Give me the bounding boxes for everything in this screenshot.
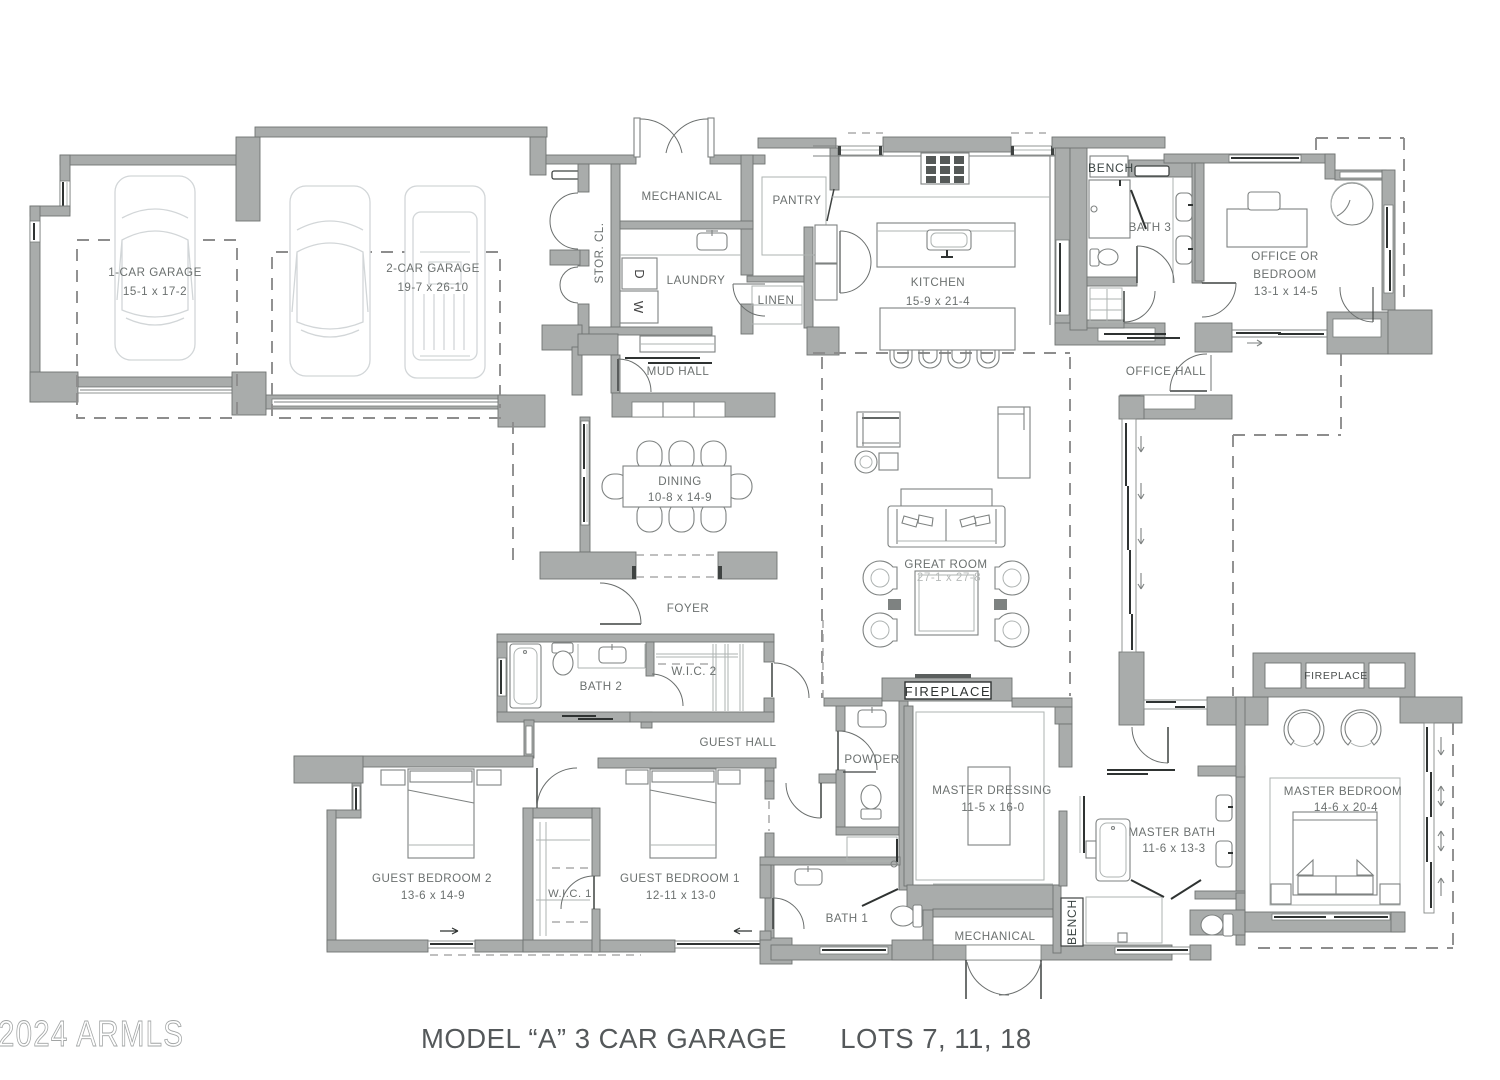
svg-text:2-CAR GARAGE: 2-CAR GARAGE [386, 262, 480, 275]
svg-text:2024 ARMLS: 2024 ARMLS [0, 1013, 184, 1053]
svg-text:DINING: DINING [658, 475, 702, 488]
svg-text:GUEST BEDROOM 2: GUEST BEDROOM 2 [372, 872, 492, 885]
svg-text:BEDROOM: BEDROOM [1253, 268, 1316, 281]
svg-text:BATH 3: BATH 3 [1129, 221, 1172, 234]
svg-text:FIREPLACE: FIREPLACE [905, 684, 992, 699]
svg-text:MASTER BATH: MASTER BATH [1128, 826, 1215, 839]
svg-text:STOR. CL.: STOR. CL. [593, 223, 606, 284]
svg-text:10-8 x 14-9: 10-8 x 14-9 [648, 491, 712, 504]
svg-text:MUD HALL: MUD HALL [647, 365, 710, 378]
svg-text:13-1 x 14-5: 13-1 x 14-5 [1254, 285, 1318, 298]
svg-text:BENCH: BENCH [1065, 899, 1079, 945]
svg-text:W: W [631, 301, 646, 314]
svg-text:KITCHEN: KITCHEN [911, 276, 965, 289]
svg-text:MASTER BEDROOM: MASTER BEDROOM [1284, 785, 1402, 798]
svg-text:W.I.C. 1: W.I.C. 1 [548, 888, 592, 900]
svg-text:12-11 x 13-0: 12-11 x 13-0 [646, 889, 716, 902]
svg-text:W.I.C. 2: W.I.C. 2 [671, 665, 716, 678]
svg-text:11-6 x 13-3: 11-6 x 13-3 [1142, 842, 1205, 855]
svg-text:14-6 x 20-4: 14-6 x 20-4 [1314, 801, 1378, 814]
svg-text:1-CAR GARAGE: 1-CAR GARAGE [108, 266, 202, 279]
svg-text:POWDER: POWDER [844, 753, 899, 766]
svg-text:13-6 x 14-9: 13-6 x 14-9 [401, 889, 465, 902]
svg-text:LINEN: LINEN [758, 294, 795, 307]
svg-text:19-7 x 26-10: 19-7 x 26-10 [397, 281, 468, 294]
svg-text:MECHANICAL: MECHANICAL [641, 190, 722, 203]
svg-text:15-1 x 17-2: 15-1 x 17-2 [123, 285, 187, 298]
svg-text:BATH 1: BATH 1 [826, 912, 869, 925]
svg-text:GUEST HALL: GUEST HALL [700, 736, 777, 749]
svg-text:FIREPLACE: FIREPLACE [1304, 670, 1368, 682]
svg-text:FOYER: FOYER [667, 602, 709, 615]
svg-text:OFFICE HALL: OFFICE HALL [1126, 365, 1206, 378]
svg-text:BATH 2: BATH 2 [580, 680, 623, 693]
svg-text:MASTER DRESSING: MASTER DRESSING [932, 784, 1052, 797]
svg-text:OFFICE OR: OFFICE OR [1251, 250, 1319, 263]
svg-text:LAUNDRY: LAUNDRY [667, 274, 726, 287]
svg-text:PANTRY: PANTRY [773, 194, 822, 207]
svg-text:MODEL “A” 3 CAR GARAGE: MODEL “A” 3 CAR GARAGE [421, 1023, 787, 1054]
svg-text:BENCH: BENCH [1088, 161, 1134, 175]
svg-text:11-5 x 16-0: 11-5 x 16-0 [961, 801, 1024, 814]
svg-text:GUEST BEDROOM 1: GUEST BEDROOM 1 [620, 872, 740, 885]
svg-text:15-9 x 21-4: 15-9 x 21-4 [906, 295, 970, 308]
svg-text:27-1 x 27-8: 27-1 x 27-8 [917, 571, 981, 584]
svg-text:LOTS 7, 11, 18: LOTS 7, 11, 18 [840, 1023, 1031, 1054]
svg-text:GREAT ROOM: GREAT ROOM [904, 558, 987, 571]
svg-text:D: D [632, 269, 647, 278]
svg-text:MECHANICAL: MECHANICAL [954, 930, 1035, 943]
